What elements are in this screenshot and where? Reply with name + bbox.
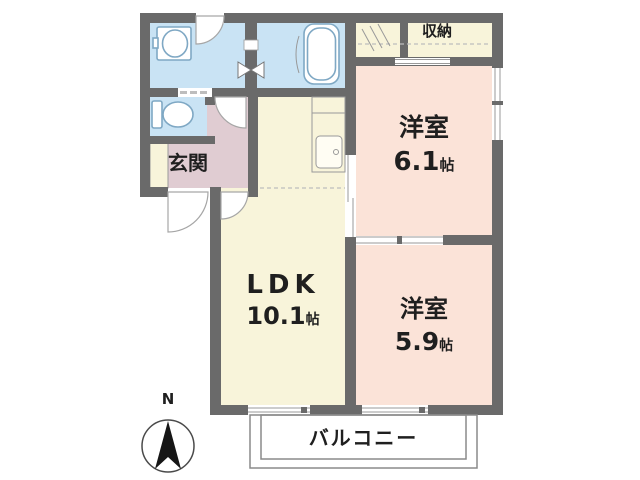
wall-hall-kitchen <box>248 88 258 197</box>
room-name: 洋室 <box>356 296 492 322</box>
western-room-6-1-label: 洋室 6.1帖 <box>356 114 492 176</box>
ldk-label: LDK 10.1帖 <box>221 271 345 329</box>
wall-entrance-south <box>140 187 168 197</box>
compass-icon <box>142 420 194 472</box>
wall-bedroom-partition <box>443 235 492 245</box>
room-area: 6.1帖 <box>356 148 492 177</box>
wall-ldk-left <box>210 187 221 415</box>
window-western-5-9-balcony <box>362 405 428 415</box>
front-door-arc <box>168 192 208 232</box>
entrance-label: 玄関 <box>162 152 214 174</box>
balcony-label: バルコニー <box>261 427 466 449</box>
room-area: 5.9帖 <box>356 328 492 356</box>
washbasin-icon <box>153 27 191 60</box>
storage-label: 収納 <box>404 23 470 40</box>
floor-plan-drawing <box>0 0 640 480</box>
western-room-5-9-label: 洋室 5.9帖 <box>356 296 492 356</box>
bath-door-jamb <box>244 40 258 50</box>
wall-left <box>140 13 150 197</box>
toilet-icon <box>152 101 193 128</box>
room-name: 洋室 <box>356 114 492 142</box>
compass-north-label: N <box>154 391 182 408</box>
room-area: 10.1帖 <box>221 303 345 329</box>
room-name: LDK <box>221 271 345 300</box>
wall-toilet-bottom <box>150 136 215 144</box>
sliding-door-western-6-1 <box>345 155 356 237</box>
floor-plan: 玄関 収納 洋室 6.1帖 洋室 5.9帖 LDK 10.1帖 バルコニー N <box>0 0 640 480</box>
window-ldk-balcony <box>248 405 310 415</box>
wall-washroom-bath <box>245 13 257 88</box>
wall-toilet-right <box>205 97 215 105</box>
